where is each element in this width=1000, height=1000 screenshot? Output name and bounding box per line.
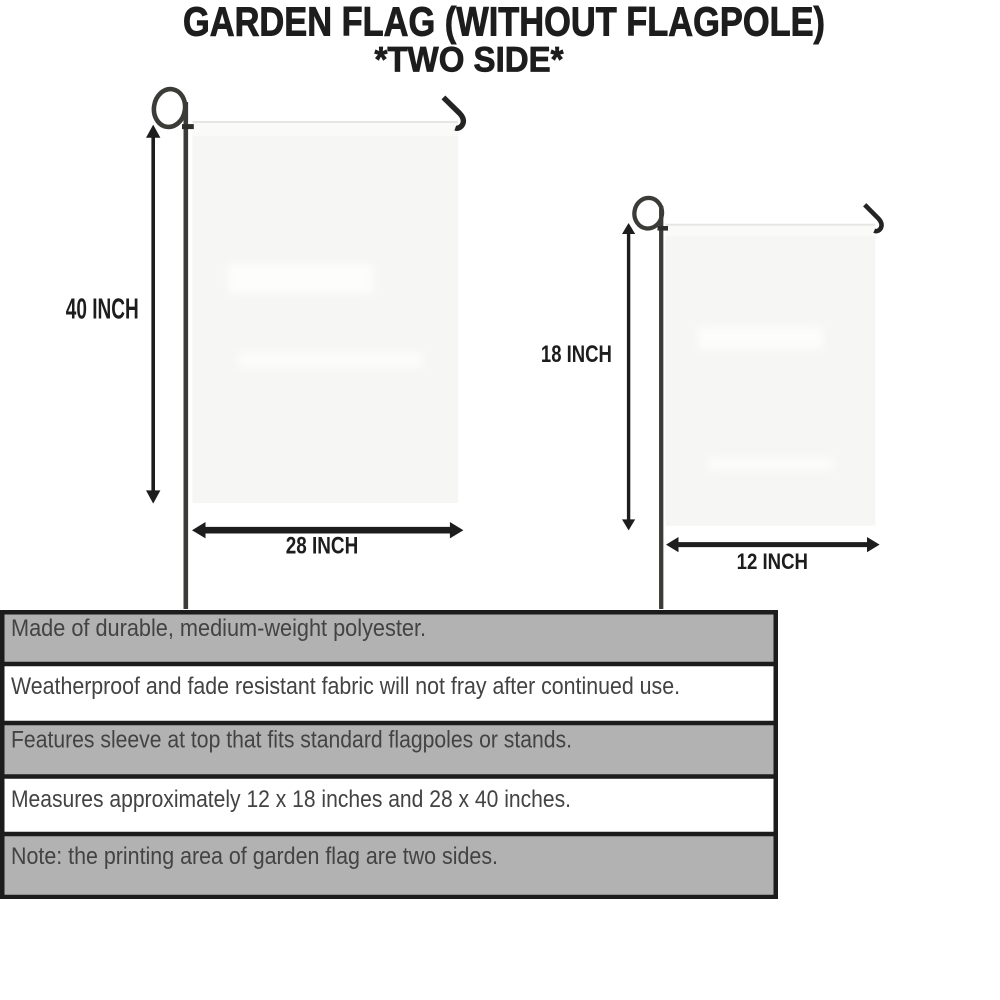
svg-text:GARDEN FLAG (WITHOUT FLAGPOLE): GARDEN FLAG (WITHOUT FLAGPOLE): [183, 0, 825, 45]
svg-text:28 INCH: 28 INCH: [286, 533, 359, 560]
svg-text:Note: the printing area of gar: Note: the printing area of garden flag a…: [11, 843, 498, 870]
svg-text:Measures approximately 12 x 18: Measures approximately 12 x 18 inches an…: [11, 786, 571, 813]
svg-text:Features sleeve at top that fi: Features sleeve at top that fits standar…: [11, 727, 572, 754]
svg-text:18 INCH: 18 INCH: [541, 341, 612, 368]
svg-text:40 INCH: 40 INCH: [66, 294, 139, 326]
svg-text:*TWO SIDE*: *TWO SIDE*: [375, 41, 564, 80]
svg-text:Weatherproof and fade resistan: Weatherproof and fade resistant fabric w…: [11, 673, 680, 700]
svg-text:Made of durable, medium-weight: Made of durable, medium-weight polyester…: [11, 615, 426, 642]
svg-text:12 INCH: 12 INCH: [737, 549, 808, 574]
